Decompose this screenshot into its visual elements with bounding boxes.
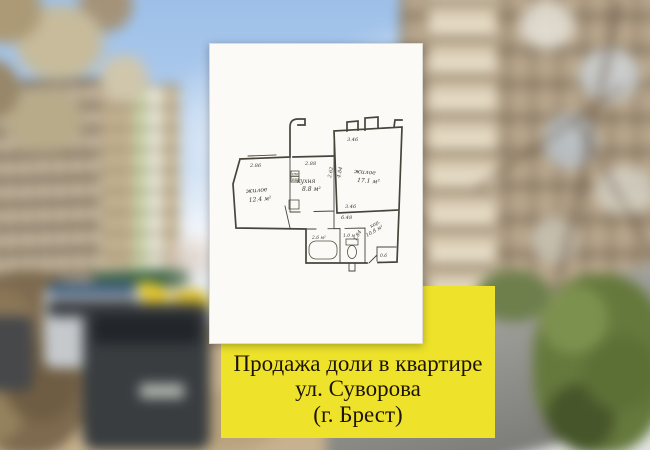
toilet-bowl [348, 246, 357, 259]
kitchen-stove [289, 200, 299, 209]
passage-dim-2: 6.48 [341, 215, 352, 221]
tree-top-left [0, 0, 193, 173]
toilet-area: 1.0 м [343, 234, 355, 239]
room-right-label: жилое [354, 168, 377, 177]
bathroom-area: 2.6 м² [311, 235, 326, 241]
room-right-area: 17.1 м² [357, 177, 381, 186]
kitchen-width: 2.88 [304, 161, 316, 167]
license-plate [140, 384, 184, 398]
listing-title-line2: ул. Суворова [295, 376, 421, 402]
room-right-width: 3.46 [347, 137, 359, 143]
listing-title-line3: (г. Брест) [313, 402, 402, 428]
kitchen-area: 8.8 м² [302, 186, 321, 193]
room-left-width: 2.86 [249, 163, 262, 169]
real-estate-ad-image: Продажа доли в квартире ул. Суворова (г.… [0, 0, 650, 450]
listing-title-line1: Продажа доли в квартире [234, 351, 483, 377]
car-roof-rack [48, 282, 136, 295]
vent-shaft-text-2: ВШ [291, 178, 300, 182]
kitchen-label: кухня [297, 178, 315, 185]
room-left-area: 12.4 м² [249, 195, 273, 204]
parked-car [0, 316, 33, 391]
passage-dim-1: 3.46 [345, 204, 357, 210]
vent-shaft-text-1: ШК [291, 173, 299, 177]
closet-area: 0.6 [380, 254, 387, 259]
room-left-label: жилое [246, 186, 269, 195]
floorplan-card: жилое 12.4 м² кухня 8.8 м² жилое 17.1 м²… [209, 43, 423, 344]
bathtub [309, 241, 337, 259]
balcony-column [428, 0, 496, 298]
room-right-depth: 4.84 [336, 166, 344, 179]
floorplan-drawing: жилое 12.4 м² кухня 8.8 м² жилое 17.1 м²… [228, 115, 410, 277]
suv-rear-window [92, 314, 200, 344]
green-bushes-right [533, 274, 650, 450]
